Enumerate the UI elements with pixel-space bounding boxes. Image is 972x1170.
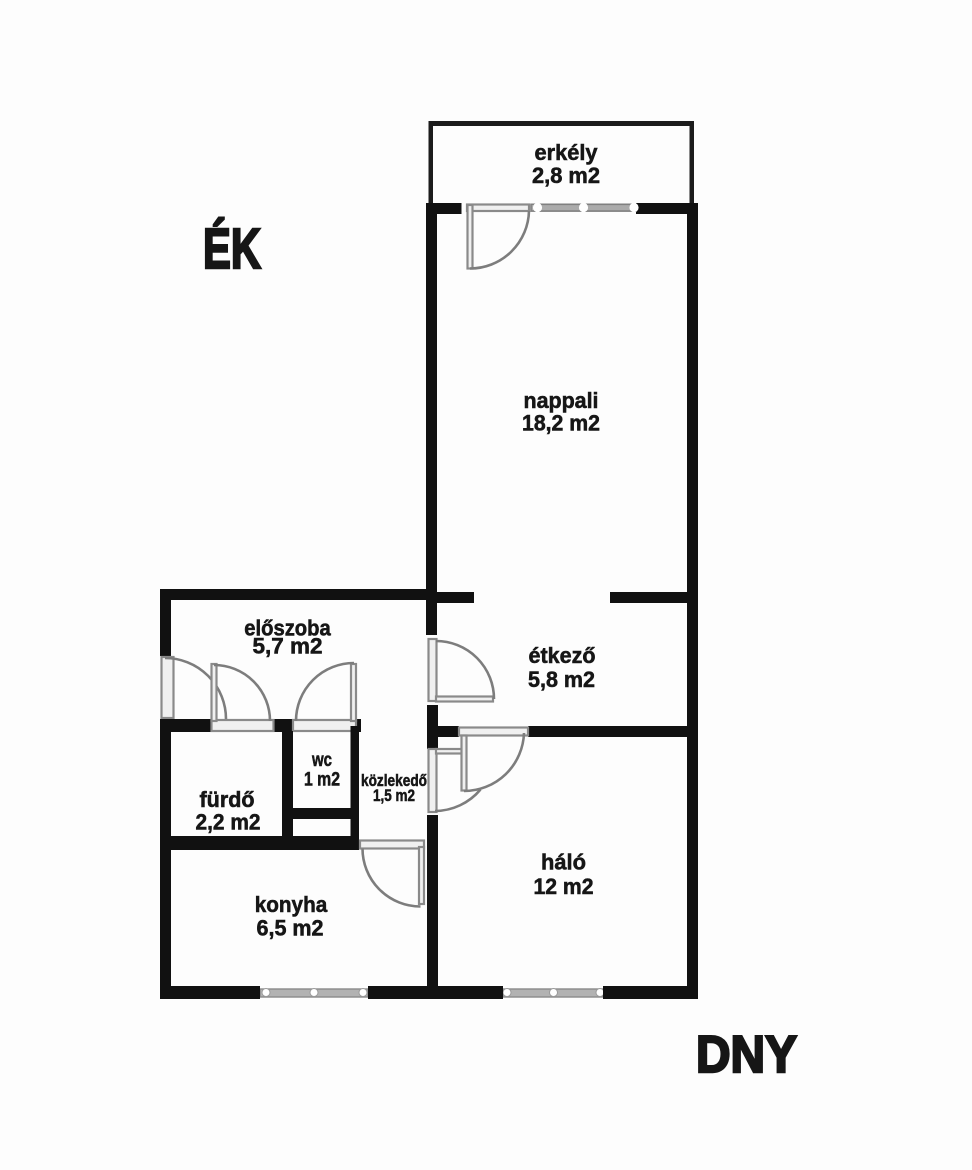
svg-text:18,2 m2: 18,2 m2	[522, 411, 600, 436]
svg-text:1,5 m2: 1,5 m2	[373, 787, 415, 805]
svg-text:háló: háló	[541, 850, 586, 875]
svg-text:12 m2: 12 m2	[534, 874, 594, 899]
svg-text:5,7 m2: 5,7 m2	[253, 634, 323, 659]
svg-text:konyha: konyha	[255, 892, 328, 917]
svg-text:2,8 m2: 2,8 m2	[532, 163, 600, 188]
svg-text:2,2 m2: 2,2 m2	[196, 810, 261, 835]
svg-text:fürdő: fürdő	[200, 787, 255, 812]
svg-text:6,5 m2: 6,5 m2	[257, 916, 324, 941]
svg-text:wc: wc	[311, 750, 332, 771]
svg-text:étkező: étkező	[529, 643, 596, 668]
svg-text:DNY: DNY	[696, 1026, 797, 1084]
svg-text:ÉK: ÉK	[203, 217, 261, 281]
svg-text:erkély: erkély	[535, 140, 599, 165]
svg-text:nappali: nappali	[524, 388, 599, 413]
svg-text:1 m2: 1 m2	[304, 769, 340, 790]
svg-text:5,8 m2: 5,8 m2	[528, 667, 595, 692]
